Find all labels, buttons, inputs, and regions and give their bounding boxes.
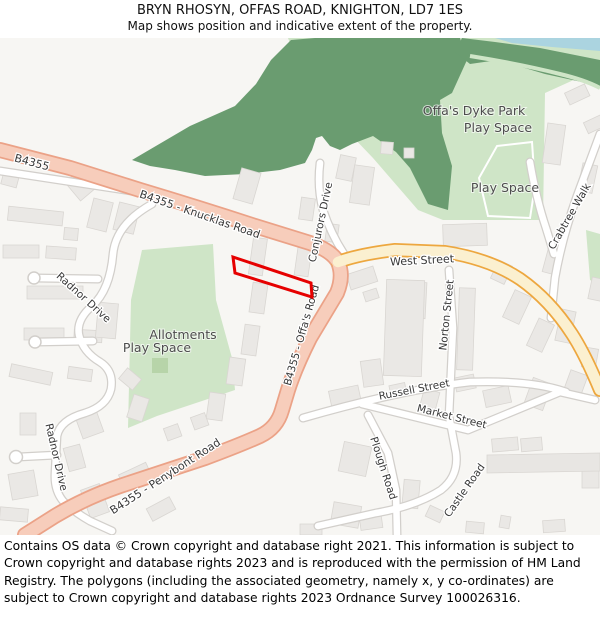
cul-de-sac xyxy=(29,336,41,348)
label-play-space: Play Space xyxy=(471,180,539,195)
building xyxy=(8,470,38,500)
building xyxy=(543,519,566,533)
building xyxy=(226,357,246,386)
building xyxy=(380,141,393,154)
building xyxy=(503,290,532,325)
building xyxy=(443,223,488,247)
building xyxy=(346,266,378,290)
map-canvas: Offa's Dyke Park Play Space Play Space A… xyxy=(0,38,600,535)
label-russell-street: Russell Street xyxy=(378,377,451,403)
building xyxy=(363,288,379,302)
building xyxy=(248,237,267,276)
building xyxy=(299,197,316,221)
building xyxy=(3,245,39,258)
label-offas-dyke-play-space: Play Space xyxy=(464,120,532,135)
building xyxy=(190,413,209,430)
map-container: Offa's Dyke Park Play Space Play Space A… xyxy=(0,38,600,535)
building xyxy=(9,364,53,385)
page-subtitle: Map shows position and indicative extent… xyxy=(0,19,600,33)
map-header: BRYN RHOSYN, OFFAS ROAD, KNIGHTON, LD7 1… xyxy=(0,0,600,38)
building xyxy=(7,206,63,226)
building xyxy=(20,413,36,435)
label-castle-road: Castle Road xyxy=(442,462,488,520)
building xyxy=(87,198,114,232)
building xyxy=(241,324,260,356)
copyright-text: Contains OS data © Crown copyright and d… xyxy=(0,535,600,608)
building xyxy=(564,84,589,105)
building xyxy=(67,366,92,381)
building xyxy=(338,441,372,476)
building xyxy=(526,318,554,352)
building xyxy=(483,385,512,407)
building xyxy=(249,282,268,314)
page-title: BRYN RHOSYN, OFFAS ROAD, KNIGHTON, LD7 1… xyxy=(0,0,600,19)
building xyxy=(492,437,519,452)
building xyxy=(46,246,77,260)
parking-strip xyxy=(487,453,600,473)
building xyxy=(404,148,414,158)
label-offas-dyke-park: Offa's Dyke Park xyxy=(423,103,526,118)
cul-de-sac xyxy=(10,451,23,464)
building xyxy=(466,521,485,534)
building xyxy=(383,279,424,376)
cul-de-sac xyxy=(28,272,40,284)
building xyxy=(0,507,28,522)
building xyxy=(63,444,86,472)
building xyxy=(499,515,511,529)
building xyxy=(425,505,445,523)
building xyxy=(163,424,182,441)
label-west-street: West Street xyxy=(390,252,455,268)
building xyxy=(146,497,176,522)
building xyxy=(64,227,79,240)
building xyxy=(542,123,565,165)
building xyxy=(588,277,600,301)
map-footer: Contains OS data © Crown copyright and d… xyxy=(0,535,600,625)
building xyxy=(206,392,226,421)
building xyxy=(360,359,383,388)
building xyxy=(521,437,543,452)
label-allotments-play-space: Play Space xyxy=(123,340,191,355)
building xyxy=(457,288,476,371)
allotments-plot xyxy=(152,358,168,373)
